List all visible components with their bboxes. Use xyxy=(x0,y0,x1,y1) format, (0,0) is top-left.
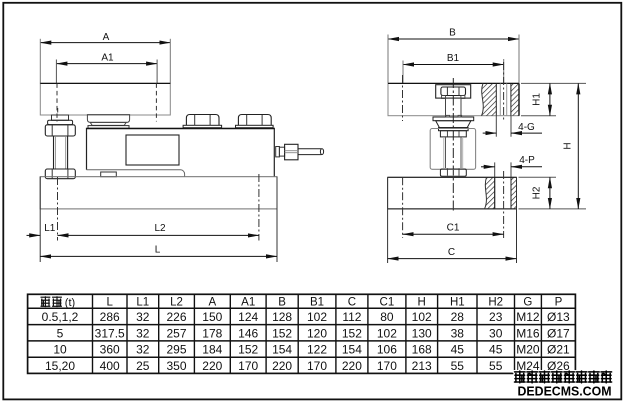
svg-text:124: 124 xyxy=(238,310,258,324)
svg-text:112: 112 xyxy=(342,310,361,324)
svg-text:B1: B1 xyxy=(310,297,324,309)
svg-text:146: 146 xyxy=(238,326,258,340)
svg-text:32: 32 xyxy=(136,310,150,324)
svg-text:213: 213 xyxy=(412,359,432,373)
svg-text:170: 170 xyxy=(307,359,327,373)
svg-text:32: 32 xyxy=(136,326,150,340)
svg-text:32: 32 xyxy=(136,343,150,357)
svg-text:102: 102 xyxy=(377,326,397,340)
svg-text:G: G xyxy=(523,297,532,309)
svg-text:152: 152 xyxy=(272,326,292,340)
svg-text:C: C xyxy=(348,297,356,309)
svg-text:178: 178 xyxy=(202,326,222,340)
svg-text:4-G: 4-G xyxy=(518,122,535,133)
svg-text:257: 257 xyxy=(166,326,186,340)
svg-text:L2: L2 xyxy=(154,223,166,234)
svg-text:317.5: 317.5 xyxy=(95,326,125,340)
svg-text:154: 154 xyxy=(342,343,362,357)
svg-text:B1: B1 xyxy=(447,53,460,64)
svg-text:350: 350 xyxy=(166,359,186,373)
svg-text:H2: H2 xyxy=(488,297,503,309)
svg-text:H: H xyxy=(563,142,574,149)
svg-text:DEDECMS.COM: DEDECMS.COM xyxy=(518,385,612,399)
svg-text:Ø17: Ø17 xyxy=(547,326,570,340)
svg-text:170: 170 xyxy=(238,359,258,373)
svg-text:30: 30 xyxy=(489,326,503,340)
svg-text:220: 220 xyxy=(342,359,362,373)
svg-text:170: 170 xyxy=(377,359,397,373)
svg-text:M20: M20 xyxy=(516,343,540,357)
svg-text:A: A xyxy=(103,32,110,43)
svg-text:55: 55 xyxy=(489,359,503,373)
svg-text:400: 400 xyxy=(100,359,120,373)
svg-text:38: 38 xyxy=(451,326,465,340)
svg-text:122: 122 xyxy=(307,343,327,357)
svg-text:102: 102 xyxy=(412,310,432,324)
svg-text:0.5,1,2: 0.5,1,2 xyxy=(42,310,79,324)
svg-text:M12: M12 xyxy=(516,310,540,324)
svg-text:(t): (t) xyxy=(65,297,75,309)
svg-text:45: 45 xyxy=(451,343,465,357)
svg-text:L: L xyxy=(106,297,113,309)
svg-text:120: 120 xyxy=(307,326,327,340)
svg-text:H1: H1 xyxy=(450,297,465,309)
svg-text:5: 5 xyxy=(57,326,64,340)
svg-text:C1: C1 xyxy=(380,297,395,309)
svg-text:286: 286 xyxy=(100,310,120,324)
svg-text:220: 220 xyxy=(272,359,292,373)
svg-text:220: 220 xyxy=(202,359,222,373)
svg-text:L1: L1 xyxy=(136,297,149,309)
svg-text:28: 28 xyxy=(451,310,465,324)
svg-text:4-P: 4-P xyxy=(519,155,535,166)
svg-text:226: 226 xyxy=(166,310,186,324)
svg-text:15,20: 15,20 xyxy=(45,359,75,373)
svg-text:H: H xyxy=(418,297,426,309)
svg-text:168: 168 xyxy=(412,343,432,357)
svg-text:L2: L2 xyxy=(170,297,183,309)
svg-text:25: 25 xyxy=(136,359,150,373)
svg-text:B: B xyxy=(449,28,456,39)
svg-text:45: 45 xyxy=(489,343,503,357)
svg-text:295: 295 xyxy=(166,343,186,357)
svg-text:128: 128 xyxy=(272,310,292,324)
svg-text:10: 10 xyxy=(53,343,67,357)
svg-text:B: B xyxy=(278,297,286,309)
svg-text:A1: A1 xyxy=(101,53,114,64)
svg-text:154: 154 xyxy=(272,343,292,357)
svg-text:Ø13: Ø13 xyxy=(547,310,570,324)
svg-text:M16: M16 xyxy=(516,326,540,340)
svg-text:L1: L1 xyxy=(44,223,56,234)
svg-text:C: C xyxy=(448,247,455,258)
svg-text:Ø21: Ø21 xyxy=(547,343,570,357)
svg-text:106: 106 xyxy=(377,343,397,357)
svg-text:H1: H1 xyxy=(532,93,543,106)
svg-text:55: 55 xyxy=(451,359,465,373)
svg-text:102: 102 xyxy=(307,310,327,324)
svg-text:80: 80 xyxy=(380,310,394,324)
svg-text:360: 360 xyxy=(100,343,120,357)
svg-text:H2: H2 xyxy=(532,186,543,199)
svg-text:A1: A1 xyxy=(241,297,255,309)
svg-text:A: A xyxy=(208,297,216,309)
svg-text:23: 23 xyxy=(489,310,503,324)
svg-text:150: 150 xyxy=(202,310,222,324)
svg-text:L: L xyxy=(155,245,161,256)
svg-text:184: 184 xyxy=(202,343,222,357)
svg-text:P: P xyxy=(555,297,563,309)
svg-text:152: 152 xyxy=(238,343,258,357)
svg-text:C1: C1 xyxy=(447,223,460,234)
svg-text:130: 130 xyxy=(412,326,432,340)
svg-text:152: 152 xyxy=(342,326,362,340)
